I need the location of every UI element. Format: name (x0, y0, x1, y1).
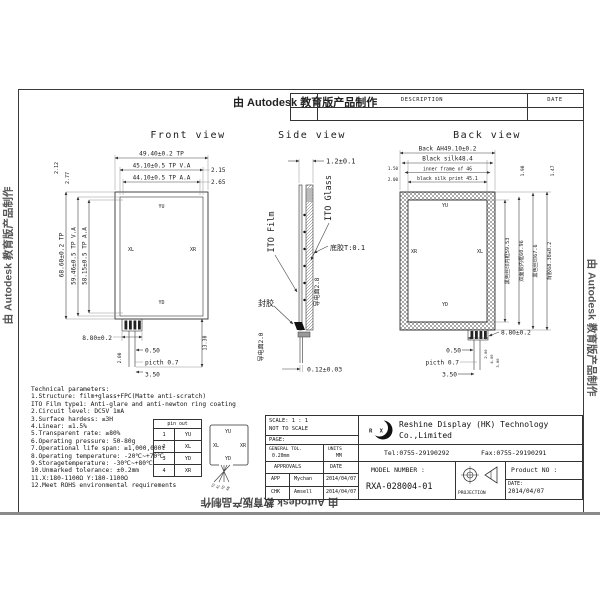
product-no-label: Product NO : (511, 466, 557, 474)
pin-out-table: pin out 1 YU 2 XL 3 YD 4 XR (153, 419, 202, 477)
side-seal-label: 封胶 (258, 298, 274, 308)
table-row: 1 YU (154, 429, 202, 441)
front-pin-width: 0.50 (145, 348, 160, 355)
revision-table: DESCRIPTION DATE (290, 93, 584, 121)
back-tiny-1: 2.00 (483, 349, 488, 359)
table-row: 2 XL (154, 441, 202, 453)
back-dim-ah: Back AH49.10±0.2 (419, 146, 477, 153)
front-tail-end: 3.50 (145, 372, 160, 379)
side-conductive-b: 导电面2.0 (257, 332, 265, 361)
front-electrode-bottom: YD (158, 300, 164, 306)
revision-date-header: DATE (527, 97, 583, 103)
back-offset-3: 1.90 (520, 165, 526, 176)
back-dim-silk: Black silk48.4 (422, 156, 473, 163)
back-tail-end: 3.50 (442, 372, 457, 379)
table-row: 3 YD (154, 453, 202, 465)
model-number-value: RXA-028004-01 (366, 482, 433, 492)
chk-date: 2014/04/07 (326, 489, 356, 495)
table-row: 4 XR (154, 465, 202, 477)
front-offset-top2: 2.77 (65, 172, 71, 184)
schematic-electrode-top: YU (225, 429, 231, 435)
front-offset-top1: 2.12 (54, 162, 60, 174)
front-electrode-right: XR (190, 247, 197, 253)
tech-line: 2.Circuit level: DC5V 1mA (31, 408, 246, 415)
back-tiny-2: 4.00 (489, 354, 494, 364)
approvals-date-header: DATE (330, 464, 342, 470)
title-block-divider (455, 461, 456, 499)
back-dim-inner-frame: inner frame of 46 (423, 167, 472, 173)
front-view-outline (115, 192, 208, 367)
pin-number: 4 (154, 465, 175, 477)
revision-table-row-divider (291, 107, 583, 108)
front-dim-width-va: 45.10±0.5 TP V.A (133, 163, 191, 170)
back-electrode-left: XR (411, 249, 418, 255)
pin-number: 2 (154, 441, 175, 453)
page-label: PAGE: (269, 437, 285, 443)
schematic-electrode-bottom: YD (225, 456, 231, 462)
general-tol-value: 0.20mm (272, 454, 289, 459)
back-offset-4: 1.47 (550, 165, 556, 176)
page-bottom-edge (0, 512, 600, 515)
back-electrode-right: XL (477, 249, 483, 255)
front-offset-aa: 2.65 (211, 179, 226, 186)
revision-description-header: DESCRIPTION (317, 97, 527, 103)
tech-line: 1.Structure: film+glass+FPC(Matte anti-s… (31, 393, 246, 400)
title-block-divider (505, 479, 582, 480)
title-block-divider (505, 461, 506, 499)
pin-signal: YD (175, 453, 202, 465)
back-view-drawing: Back view (385, 120, 585, 390)
back-view-outline (400, 192, 495, 370)
back-offset-1: 1.50 (388, 166, 399, 171)
front-dim-height-va: 59.46±0.5 TP V.A (71, 227, 78, 285)
title-block: SCALE: 1 : 1 NOT TO SCALE PAGE: GENERAL … (265, 415, 583, 500)
tech-title: Technical parameters: (31, 386, 246, 393)
units-label: UNITS (328, 447, 342, 452)
back-pitch: picth 0.7 (425, 360, 459, 367)
side-view-title: Side view (278, 130, 346, 141)
front-dim-width-aa: 44.10±0.5 TP A.A (133, 175, 191, 182)
front-pitch: picth 0.7 (145, 360, 179, 367)
front-dim-height-tp: 68.60±0.2 TP (59, 232, 66, 277)
tech-line: ITO Film type1: Anti-glare and anti-newt… (31, 401, 246, 408)
back-pin-width: 0.50 (446, 348, 461, 355)
date-value: 2014/04/07 (508, 488, 544, 495)
company-name-line1: Reshine Display (HK) Technology (399, 420, 548, 429)
pin-number: 1 (154, 429, 175, 441)
front-tail-width: 8.80±0.2 (82, 335, 112, 342)
app-role: APP (271, 476, 280, 482)
schematic-electrode-left: XL (213, 443, 219, 449)
drawing-sheet-page: 由 Autodesk 教育版产品制作 由 Autodesk 教育版产品制作 由 … (0, 0, 600, 600)
date-label: DATE: (508, 481, 523, 487)
seal-blob (294, 322, 305, 330)
units-value: MM (336, 454, 342, 459)
schematic-pin-4: XR (225, 485, 231, 491)
schematic-electrode-right: XR (240, 443, 247, 449)
front-view-title: Front view (150, 130, 225, 141)
front-dim-height-aa: 58.15±0.5 TP A.A (82, 227, 89, 285)
company-name-line2: Co.,Limited (399, 431, 452, 440)
front-offset-va: 2.15 (211, 167, 226, 174)
pin-schematic: YU XL XR YD YU XL YD XR (205, 420, 255, 495)
back-vdim-3: 黑色丝印67.6 (531, 244, 539, 277)
front-electrode-top: YU (158, 204, 164, 210)
side-view-drawing: Side view (250, 120, 390, 390)
back-view-title: Back view (453, 130, 521, 141)
side-fpc-thickness: 0.12±0.03 (307, 366, 342, 374)
side-ito-film-label: ITO Film (267, 212, 277, 253)
title-block-divider (266, 444, 582, 445)
side-conductive-a: 导电面2.8 (313, 277, 321, 306)
back-electrode-bottom: YD (442, 302, 448, 308)
title-block-divider (266, 473, 358, 474)
pin-signal: YU (175, 429, 202, 441)
back-tail-width: 8.80±0.2 (501, 330, 531, 337)
back-vdim-4: 背胶68.30±0.2 (545, 242, 553, 280)
back-dim-silk-print: black silk print 45.1 (417, 176, 478, 182)
pin-signal: XR (175, 465, 202, 477)
model-number-label: MODEL NUMBER : (371, 466, 425, 474)
chk-name: Amsell (294, 489, 312, 495)
pin-signal: XL (175, 441, 202, 453)
projection-label: PROJECTION (458, 491, 486, 496)
app-date: 2014/04/07 (326, 476, 356, 482)
app-name: Mychan (294, 476, 312, 482)
back-view-dimension-labels: Back AH49.10±0.2 Black silk48.4 inner fr… (388, 146, 556, 379)
title-block-divider (289, 473, 290, 499)
side-ito-glass-label: ITO Glass (324, 175, 334, 221)
side-view-outline (294, 185, 313, 363)
projection-symbol-icon (460, 464, 500, 486)
watermark-right: 由 Autodesk 教育版产品制作 (585, 243, 600, 413)
title-block-divider (323, 444, 324, 499)
back-view-electrode-labels: YU XR XL YD (411, 203, 483, 308)
company-tel: Tel:0755-29190292 (384, 449, 449, 457)
back-tiny-3: 3.80 (495, 358, 500, 368)
general-tol-label: GENERAL TOL. (269, 447, 302, 452)
front-tail-length: 13.30 (203, 335, 209, 350)
company-logo-icon: R X (366, 419, 396, 441)
scale-label: SCALE: 1 : 1 (269, 418, 308, 424)
front-tail-offset: 2.00 (117, 352, 123, 363)
front-electrode-left: XL (128, 247, 134, 253)
logo-text: R X (369, 429, 385, 435)
approvals-header: APPROVALS (274, 464, 301, 470)
company-fax: Fax:0755-29190291 (481, 449, 546, 457)
back-offset-2: 2.00 (388, 177, 399, 182)
title-block-divider (266, 435, 358, 436)
side-thickness: 1.2±0.1 (326, 158, 356, 166)
title-block-divider (358, 416, 359, 499)
back-electrode-top: YU (442, 203, 448, 209)
front-dim-width-tp: 49.40±0.2 TP (139, 151, 184, 158)
back-vdim-1: 黑色丝印内框59.53 (503, 238, 511, 285)
not-to-scale-label: NOT TO SCALE (269, 426, 308, 432)
watermark-left: 由 Autodesk 教育版产品制作 (1, 171, 16, 341)
chk-role: CHK (271, 489, 280, 495)
side-bottom-glue-label: 底胶T:0.1 (330, 243, 365, 252)
pin-number: 3 (154, 453, 175, 465)
front-view-electrode-labels: YU XL XR YD (128, 204, 197, 306)
title-block-divider (266, 486, 358, 487)
back-vdim-2: 双面胶内框60.96 (517, 240, 525, 282)
pin-table-header: pin out (154, 420, 202, 429)
pin-schematic-leads (214, 465, 230, 482)
title-block-divider (266, 461, 582, 462)
front-view-drawing: Front view (30, 120, 260, 390)
